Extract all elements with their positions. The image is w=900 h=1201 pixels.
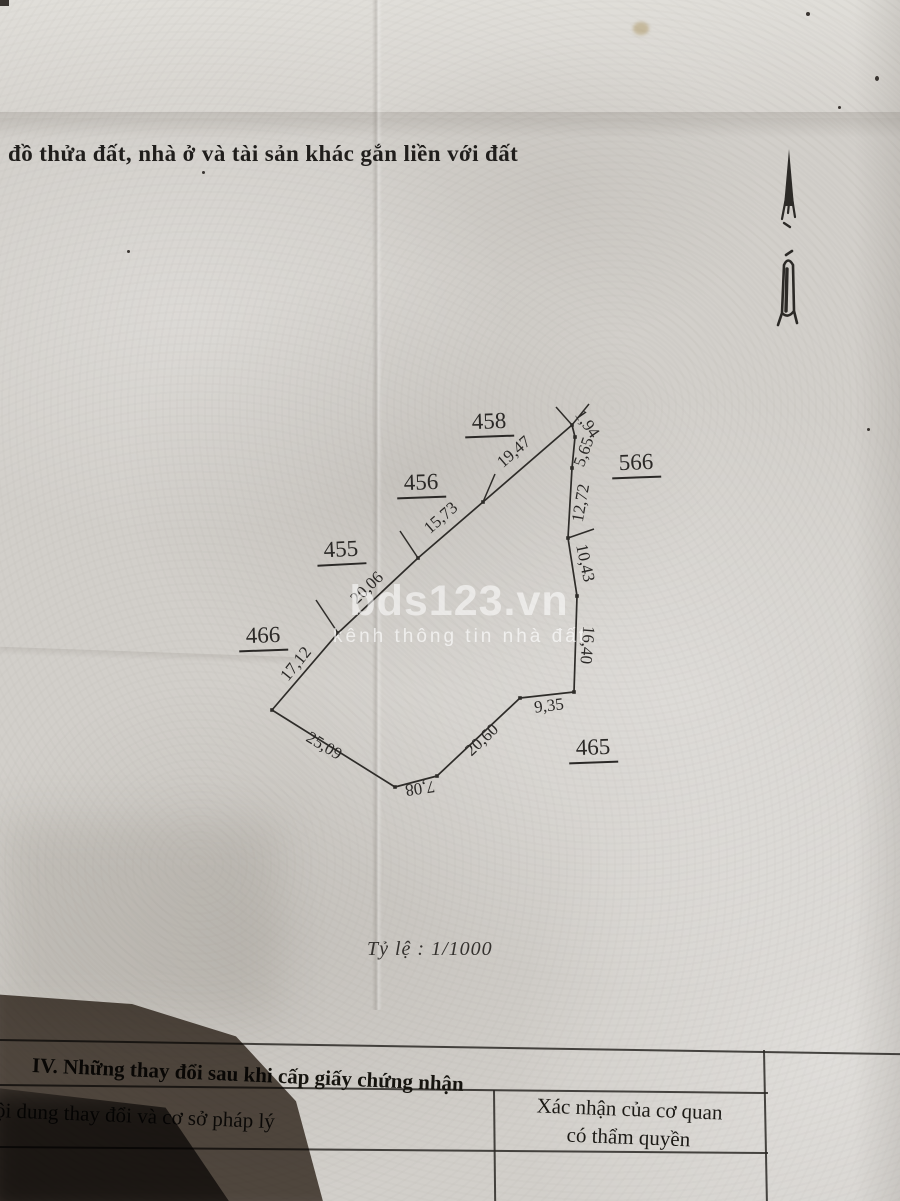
boundary-tick [568,529,594,538]
column-header-authority: Xác nhận của cơ quan có thẩm quyền [499,1090,759,1157]
vertex-point [416,556,420,560]
vertex-point [270,708,274,712]
vertex-point [572,690,576,694]
vertex-point [481,500,485,504]
vertex-point [573,435,577,439]
vertex-point [566,536,570,540]
vertex-point [435,774,439,778]
boundary-tick [400,531,418,558]
boundary-tick [572,404,589,425]
watermark-tagline: kênh thông tin nhà đất [333,626,585,648]
watermark-brand: bds123.vn [333,580,585,623]
scanned-document-page: đồ thửa đất, nhà ở và tài sản khác gắn l… [0,0,900,1201]
vertex-point [393,785,397,789]
vertex-point [518,696,522,700]
boundary-tick [556,407,572,425]
vertex-point [570,423,574,427]
watermark: bds123.vn kênh thông tin nhà đất [333,580,585,648]
vertex-point [570,466,574,470]
map-scale-label: Tỷ lệ : 1/1000 [367,938,493,961]
